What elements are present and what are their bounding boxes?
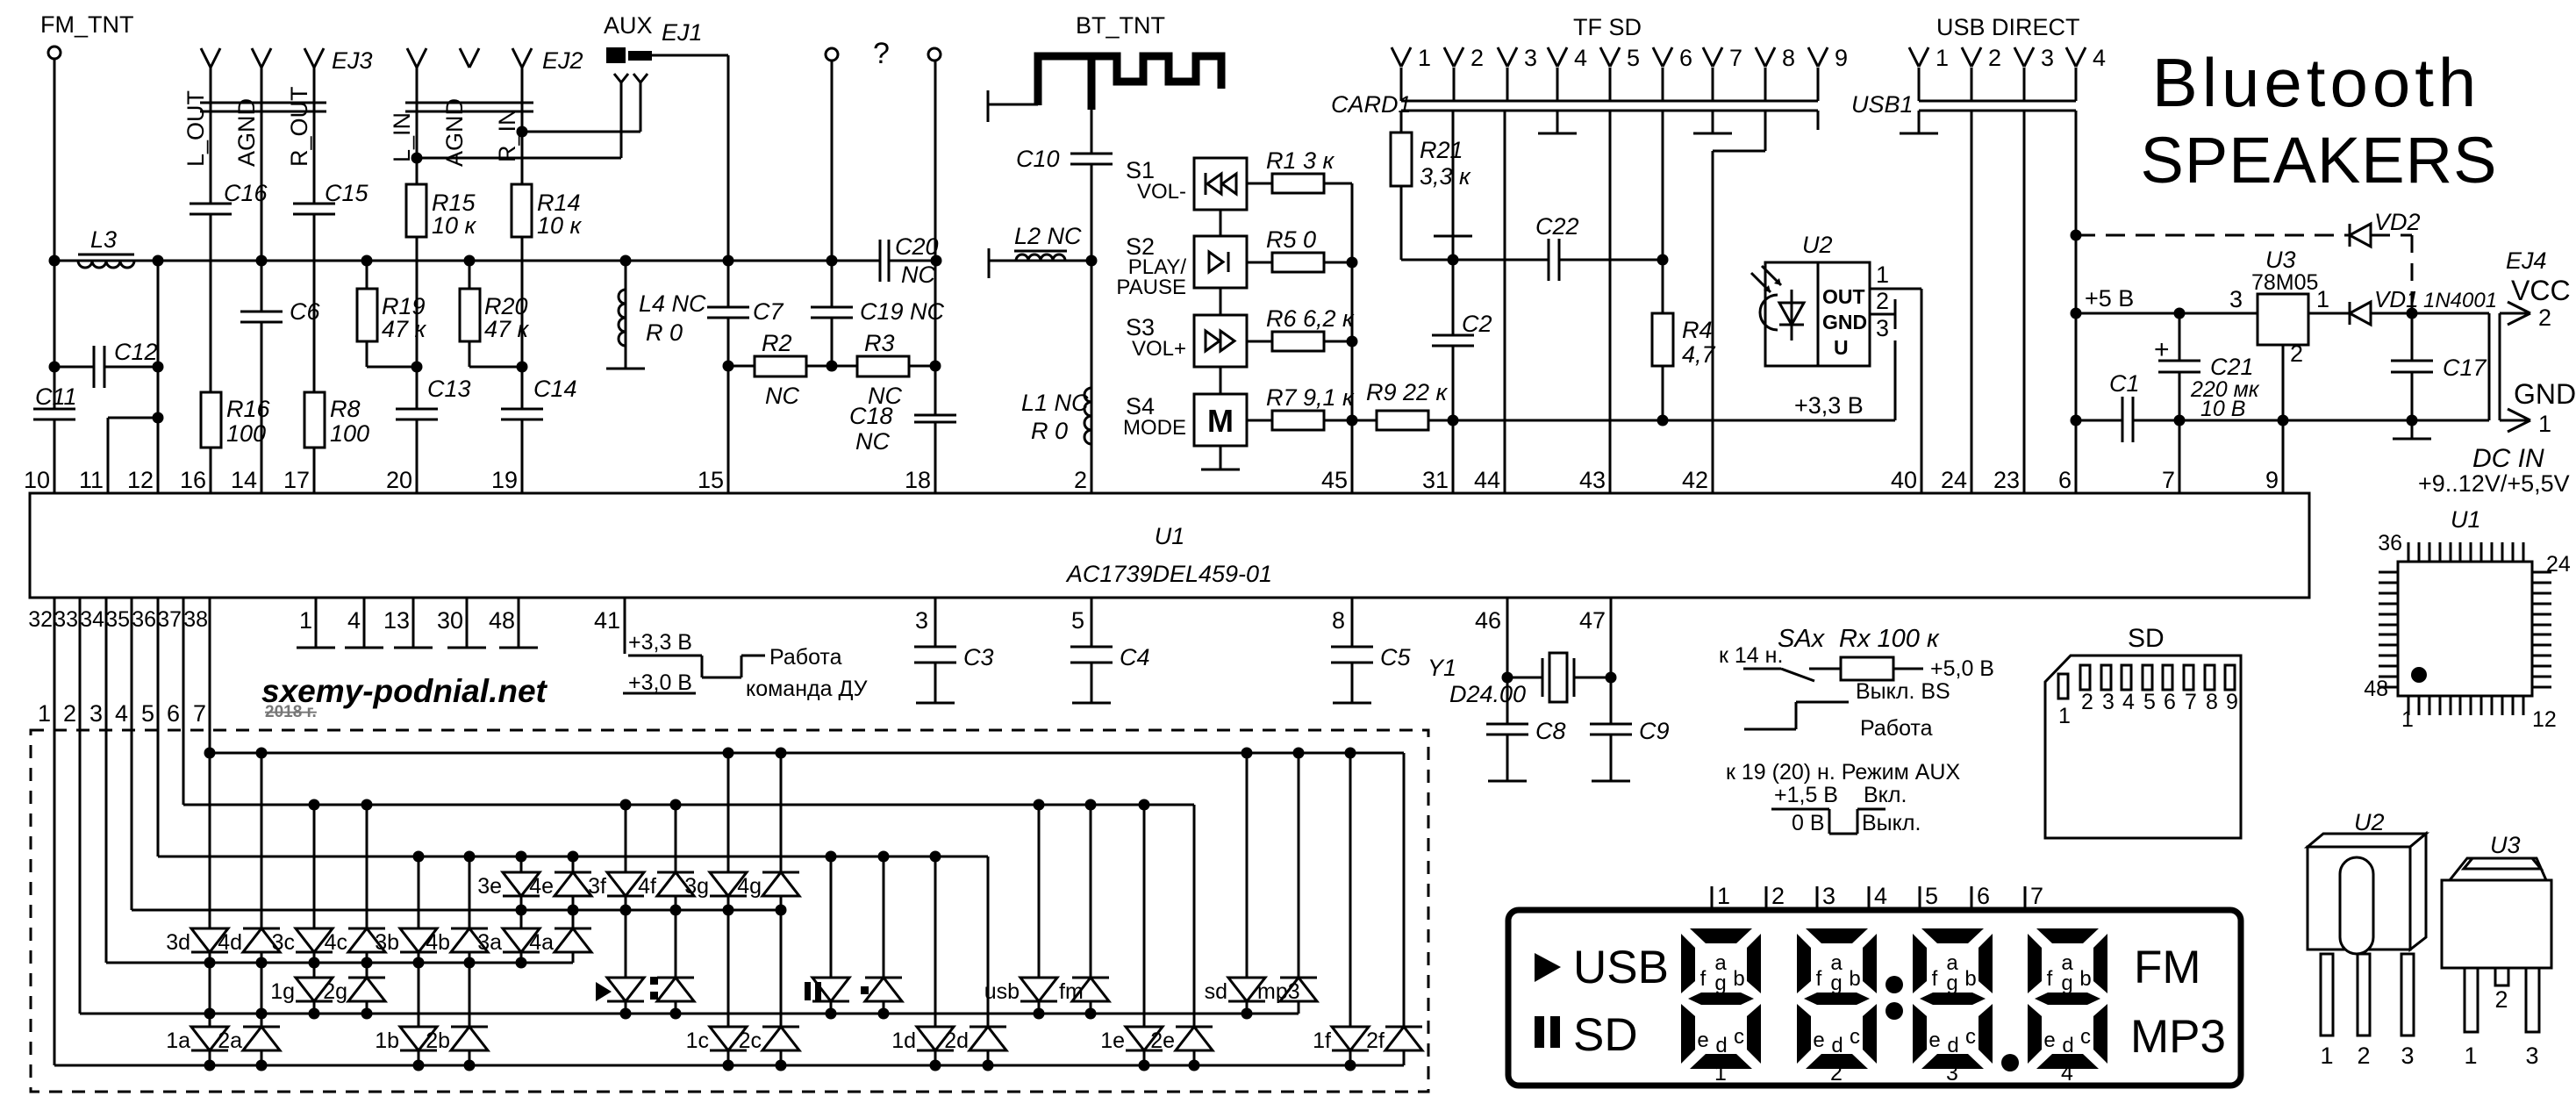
svg-text:2: 2 (63, 700, 76, 727)
svg-text:2f: 2f (1366, 1028, 1385, 1053)
svg-text:R1 3 к: R1 3 к (1266, 147, 1335, 174)
svg-text:VOL+: VOL+ (1132, 337, 1186, 361)
svg-text:e: e (1928, 1028, 1940, 1052)
svg-text:3: 3 (2525, 1043, 2538, 1069)
svg-text:M: M (1207, 403, 1234, 439)
svg-text:32: 32 (28, 607, 53, 632)
svg-text:AC1739DEL459-01: AC1739DEL459-01 (1065, 561, 1272, 587)
svg-text:PAUSE: PAUSE (1116, 276, 1186, 299)
svg-text:USB: USB (1573, 942, 1669, 993)
svg-text:+3,3 В: +3,3 В (628, 630, 692, 655)
svg-text:f: f (2047, 967, 2053, 991)
svg-text:3: 3 (2102, 690, 2114, 714)
svg-text:U3: U3 (2265, 247, 2296, 273)
svg-text:1a: 1a (166, 1028, 190, 1053)
svg-text:MP3: MP3 (2130, 1011, 2226, 1063)
svg-text:31: 31 (1422, 467, 1449, 493)
svg-text:14: 14 (231, 467, 257, 493)
svg-text:U: U (1834, 336, 1849, 359)
svg-text:C17: C17 (2443, 355, 2487, 381)
svg-text:к 19 (20) н. Режим AUX: к 19 (20) н. Режим AUX (1726, 760, 1960, 785)
svg-text:EJ4: EJ4 (2506, 247, 2547, 274)
svg-text:4: 4 (2122, 690, 2135, 714)
svg-text:5: 5 (1627, 45, 1640, 71)
svg-text:+3,0 В: +3,0 В (628, 670, 692, 695)
svg-text:1f: 1f (1313, 1028, 1331, 1053)
svg-text:2: 2 (2290, 340, 2303, 367)
svg-text:usb: usb (984, 979, 1020, 1004)
svg-text:4b: 4b (426, 930, 450, 955)
svg-text:48: 48 (2364, 677, 2388, 701)
svg-text:42: 42 (1682, 467, 1708, 493)
svg-text:2g: 2g (323, 979, 347, 1004)
svg-text:SD: SD (1573, 1009, 1638, 1061)
svg-text:2: 2 (1876, 288, 1889, 314)
svg-text:C7: C7 (753, 298, 784, 325)
svg-text:11: 11 (79, 467, 104, 493)
svg-text:9: 9 (1835, 45, 1848, 71)
svg-text:3d: 3d (166, 930, 190, 955)
svg-text:USB DIRECT: USB DIRECT (1936, 14, 2080, 40)
svg-text:3a: 3a (477, 930, 502, 955)
svg-text:e: e (2043, 1028, 2055, 1052)
svg-text:1b: 1b (375, 1028, 399, 1053)
svg-text:OUT: OUT (1822, 285, 1865, 308)
svg-text:b: b (2079, 967, 2091, 991)
svg-text:1N4001: 1N4001 (2423, 289, 2497, 312)
svg-text:5: 5 (1071, 607, 1084, 634)
svg-text:3g: 3g (684, 874, 709, 899)
svg-text:3: 3 (2401, 1043, 2414, 1069)
svg-text:16: 16 (180, 467, 206, 493)
svg-text:R16: R16 (226, 396, 271, 422)
svg-text:2: 2 (2494, 986, 2508, 1013)
svg-text:2c: 2c (739, 1028, 762, 1053)
svg-text:100: 100 (226, 420, 266, 447)
svg-text:C18: C18 (849, 403, 893, 429)
svg-text:38: 38 (183, 607, 208, 632)
svg-text:2a: 2a (218, 1028, 242, 1053)
svg-text:23: 23 (1993, 467, 2020, 493)
svg-text:L_OUT: L_OUT (182, 90, 209, 167)
svg-text:R3: R3 (864, 330, 895, 356)
svg-text:Вкл.: Вкл. (1864, 783, 1907, 807)
svg-text:GND: GND (1822, 311, 1867, 333)
svg-text:CARD1: CARD1 (1331, 91, 1412, 118)
svg-text:1: 1 (1936, 45, 1949, 71)
svg-text:40: 40 (1891, 467, 1917, 493)
svg-text:VOL-: VOL- (1137, 180, 1186, 204)
svg-text:15: 15 (698, 467, 724, 493)
svg-text:EJ1: EJ1 (662, 19, 703, 46)
svg-text:2d: 2d (944, 1028, 969, 1053)
svg-text:R 0: R 0 (1031, 418, 1068, 444)
svg-text:12: 12 (127, 467, 154, 493)
svg-text:41: 41 (594, 607, 620, 634)
svg-text:b: b (1733, 967, 1744, 991)
svg-text:6: 6 (2058, 467, 2072, 493)
svg-text:7: 7 (1729, 45, 1742, 71)
svg-text:g: g (1946, 971, 1957, 995)
svg-text:4e: 4e (529, 874, 554, 899)
svg-text:1e: 1e (1100, 1028, 1125, 1053)
svg-text:2: 2 (1771, 883, 1785, 909)
svg-text:e: e (1697, 1028, 1708, 1052)
svg-text:+3,3 В: +3,3 В (1794, 392, 1864, 419)
svg-text:4d: 4d (218, 930, 242, 955)
svg-text:Rx 100 к: Rx 100 к (1839, 625, 1940, 653)
svg-text:SPEAKERS: SPEAKERS (2141, 124, 2498, 197)
svg-text:R 0: R 0 (646, 319, 683, 346)
svg-text:d: d (1715, 1034, 1727, 1057)
svg-text:EJ3: EJ3 (332, 47, 373, 74)
svg-text:SAx: SAx (1778, 625, 1826, 653)
svg-text:GND: GND (2514, 378, 2576, 410)
svg-text:7: 7 (2030, 883, 2043, 909)
svg-text:U3: U3 (2490, 832, 2521, 858)
svg-text:100: 100 (330, 420, 369, 447)
svg-text:C3: C3 (963, 644, 994, 670)
svg-text:12: 12 (2532, 707, 2557, 732)
svg-text:1: 1 (2538, 411, 2551, 437)
svg-text:3: 3 (89, 700, 103, 727)
svg-text:sd: sd (1205, 979, 1227, 1004)
svg-text:20: 20 (386, 467, 412, 493)
svg-text:Работа: Работа (1860, 716, 1933, 741)
svg-text:VD2: VD2 (2374, 209, 2421, 235)
svg-text:2: 2 (1470, 45, 1484, 71)
svg-text:8: 8 (1332, 607, 1345, 634)
svg-text:1g: 1g (270, 979, 295, 1004)
svg-text:EJ2: EJ2 (542, 47, 583, 74)
svg-text:6: 6 (167, 700, 180, 727)
svg-text:C6: C6 (290, 298, 320, 325)
svg-text:d: d (1947, 1034, 1958, 1057)
svg-text:c: c (1965, 1025, 1976, 1049)
svg-text:C14: C14 (533, 376, 577, 402)
svg-text:Y1: Y1 (1428, 655, 1456, 681)
svg-text:+9..12V/+5,5V: +9..12V/+5,5V (2418, 470, 2570, 497)
svg-text:4: 4 (347, 607, 361, 634)
svg-text:R6 6,2 к: R6 6,2 к (1266, 305, 1355, 332)
svg-text:1: 1 (2316, 286, 2329, 312)
svg-text:L_IN: L_IN (389, 112, 415, 162)
svg-text:SD: SD (2128, 624, 2165, 653)
svg-text:b: b (1964, 967, 1976, 991)
svg-text:4a: 4a (529, 930, 554, 955)
svg-text:L1 NC: L1 NC (1021, 390, 1089, 416)
svg-text:10 В: 10 В (2200, 397, 2245, 421)
svg-text:6: 6 (1977, 883, 1990, 909)
svg-text:78M05: 78M05 (2251, 270, 2318, 295)
svg-text:46: 46 (1475, 607, 1501, 634)
svg-text:d: d (2062, 1034, 2073, 1057)
svg-text:d: d (1831, 1034, 1843, 1057)
svg-text:2: 2 (2081, 690, 2093, 714)
svg-text:4g: 4g (737, 874, 762, 899)
svg-text:c: c (1734, 1025, 1744, 1049)
svg-text:Bluetooth: Bluetooth (2152, 44, 2481, 121)
svg-text:1: 1 (2320, 1043, 2333, 1069)
svg-text:g: g (2061, 971, 2072, 995)
svg-text:+5 В: +5 В (2085, 285, 2134, 312)
svg-text:2e: 2e (1150, 1028, 1175, 1053)
svg-text:R7 9,1 к: R7 9,1 к (1266, 384, 1355, 411)
svg-text:Работа: Работа (769, 645, 842, 670)
svg-text:R2: R2 (762, 330, 792, 356)
svg-text:7: 7 (2162, 467, 2175, 493)
svg-text:1c: 1c (686, 1028, 709, 1053)
svg-text:L3: L3 (90, 226, 117, 253)
svg-text:VCC: VCC (2511, 275, 2571, 306)
svg-text:4f: 4f (638, 874, 656, 899)
svg-text:C1: C1 (2109, 370, 2140, 397)
svg-text:c: c (2080, 1025, 2091, 1049)
svg-text:6: 6 (2164, 690, 2176, 714)
svg-text:1: 1 (38, 700, 51, 727)
svg-text:C13: C13 (427, 376, 471, 402)
svg-text:4c: 4c (325, 930, 347, 955)
svg-text:R21: R21 (1420, 137, 1463, 163)
svg-text:f: f (1816, 967, 1822, 991)
svg-text:AGND: AGND (233, 98, 260, 167)
svg-text:4: 4 (2093, 45, 2106, 71)
svg-text:AGND: AGND (441, 98, 468, 167)
svg-text:2b: 2b (426, 1028, 450, 1053)
svg-text:D24.00: D24.00 (1449, 681, 1526, 707)
svg-text:2: 2 (1830, 1061, 1843, 1086)
svg-text:36: 36 (132, 607, 156, 632)
svg-text:+5,0 В: +5,0 В (1930, 656, 1994, 681)
svg-text:47 к: 47 к (484, 316, 530, 342)
svg-text:24: 24 (1941, 467, 1967, 493)
svg-text:3b: 3b (375, 930, 399, 955)
svg-text:команда ДУ: команда ДУ (746, 677, 868, 701)
svg-text:2: 2 (2357, 1043, 2370, 1069)
svg-text:0 В: 0 В (1792, 811, 1825, 835)
svg-text:TF SD: TF SD (1573, 14, 1642, 40)
svg-text:35: 35 (105, 607, 130, 632)
svg-text:8: 8 (1782, 45, 1795, 71)
svg-text:NC: NC (765, 383, 799, 409)
svg-text:1: 1 (2464, 1043, 2477, 1069)
svg-text:R9 22 к: R9 22 к (1366, 379, 1449, 405)
svg-text:10: 10 (24, 467, 50, 493)
svg-text:C9: C9 (1639, 718, 1670, 744)
svg-text:18: 18 (905, 467, 931, 493)
svg-text:U1: U1 (2451, 506, 2481, 533)
svg-text:C19 NC: C19 NC (860, 298, 945, 325)
svg-text:8: 8 (2206, 690, 2218, 714)
svg-text:C20: C20 (895, 233, 939, 260)
svg-text:4: 4 (2061, 1061, 2073, 1086)
svg-text:1: 1 (2058, 704, 2071, 728)
svg-text:NC: NC (901, 262, 935, 288)
svg-text:2: 2 (1988, 45, 2001, 71)
svg-text:e: e (1813, 1028, 1824, 1052)
svg-text:R_IN: R_IN (494, 108, 520, 162)
svg-text:BT_TNT: BT_TNT (1076, 12, 1165, 39)
svg-text:48: 48 (489, 607, 515, 634)
svg-text:MODE: MODE (1123, 416, 1186, 440)
svg-text:44: 44 (1474, 467, 1500, 493)
svg-text:1: 1 (1876, 262, 1889, 288)
svg-text:3: 3 (1876, 315, 1889, 341)
svg-text:30: 30 (437, 607, 463, 634)
svg-text:R4: R4 (1682, 317, 1713, 343)
svg-text:R8: R8 (330, 396, 361, 422)
svg-text:USB1: USB1 (1851, 91, 1914, 118)
svg-text:3f: 3f (588, 874, 606, 899)
svg-text:17: 17 (283, 467, 310, 493)
svg-text:к 14 н.: к 14 н. (1719, 643, 1783, 668)
svg-text:5: 5 (2143, 690, 2156, 714)
svg-text:L4 NC: L4 NC (639, 290, 706, 317)
svg-text:DC IN: DC IN (2472, 444, 2544, 473)
svg-text:1: 1 (1714, 1061, 1727, 1086)
svg-text:2: 2 (1074, 467, 1087, 493)
svg-text:U2: U2 (1802, 232, 1833, 258)
svg-text:43: 43 (1579, 467, 1606, 493)
svg-text:C4: C4 (1120, 644, 1150, 670)
svg-text:C8: C8 (1535, 718, 1566, 744)
svg-text:U1: U1 (1155, 523, 1185, 549)
svg-text:L2 NC: L2 NC (1014, 223, 1082, 249)
svg-text:4,7: 4,7 (1682, 341, 1716, 368)
svg-text:3: 3 (915, 607, 928, 634)
svg-text:1: 1 (299, 607, 312, 634)
svg-text:33: 33 (54, 607, 78, 632)
svg-text:5: 5 (1925, 883, 1938, 909)
svg-text:37: 37 (157, 607, 182, 632)
svg-text:f: f (1700, 967, 1707, 991)
svg-text:2: 2 (2538, 305, 2551, 331)
svg-text:U2: U2 (2354, 809, 2385, 835)
svg-text:3: 3 (2041, 45, 2054, 71)
svg-text:?: ? (873, 37, 890, 70)
svg-text:9: 9 (2265, 467, 2279, 493)
svg-text:C5: C5 (1380, 644, 1411, 670)
svg-text:10 к: 10 к (537, 212, 583, 239)
svg-text:3: 3 (1524, 45, 1537, 71)
svg-text:R5 0: R5 0 (1266, 226, 1316, 253)
svg-text:4: 4 (115, 700, 128, 727)
svg-text:34: 34 (80, 607, 104, 632)
svg-text:36: 36 (2378, 531, 2402, 555)
svg-text:b: b (1849, 967, 1860, 991)
svg-text:13: 13 (383, 607, 410, 634)
svg-text:f: f (1932, 967, 1938, 991)
svg-text:7: 7 (2185, 690, 2197, 714)
svg-text:C12: C12 (114, 339, 158, 365)
svg-text:g: g (1714, 971, 1726, 995)
svg-text:+1,5 В: +1,5 В (1774, 783, 1838, 807)
svg-text:1: 1 (1717, 883, 1730, 909)
svg-text:fm: fm (1059, 979, 1084, 1004)
svg-text:3e: 3e (477, 874, 502, 899)
svg-text:3: 3 (2229, 286, 2243, 312)
svg-text:C10: C10 (1016, 146, 1060, 172)
svg-text:3,3 к: 3,3 к (1420, 163, 1471, 190)
svg-text:19: 19 (491, 467, 518, 493)
svg-text:3: 3 (1946, 1061, 1958, 1086)
svg-text:2018 г.: 2018 г. (265, 703, 317, 721)
svg-text:5: 5 (141, 700, 154, 727)
svg-text:47 к: 47 к (382, 316, 427, 342)
svg-text:1: 1 (1418, 45, 1431, 71)
svg-text:C11: C11 (35, 383, 77, 410)
svg-text:3: 3 (1822, 883, 1835, 909)
svg-text:AUX: AUX (604, 12, 653, 39)
svg-text:NC: NC (855, 428, 890, 455)
svg-text:4: 4 (1574, 45, 1587, 71)
svg-text:FM_TNT: FM_TNT (40, 11, 133, 38)
svg-text:c: c (1850, 1025, 1860, 1049)
svg-text:C2: C2 (1462, 311, 1492, 337)
svg-text:1d: 1d (891, 1028, 916, 1053)
svg-text:mp3: mp3 (1257, 979, 1300, 1004)
svg-text:Выкл. BS: Выкл. BS (1856, 679, 1950, 704)
svg-text:C22: C22 (1535, 213, 1579, 240)
svg-text:47: 47 (1579, 607, 1606, 634)
svg-text:6: 6 (1679, 45, 1692, 71)
svg-text:R_OUT: R_OUT (286, 86, 312, 167)
svg-text:Выкл.: Выкл. (1862, 811, 1921, 835)
svg-text:45: 45 (1321, 467, 1348, 493)
svg-text:g: g (1830, 971, 1842, 995)
svg-text:7: 7 (193, 700, 206, 727)
svg-text:3c: 3c (272, 930, 295, 955)
svg-text:C21: C21 (2210, 354, 2254, 380)
svg-text:9: 9 (2226, 690, 2238, 714)
svg-text:4: 4 (1874, 883, 1887, 909)
svg-text:FM: FM (2134, 942, 2201, 993)
svg-text:10 к: 10 к (432, 212, 477, 239)
